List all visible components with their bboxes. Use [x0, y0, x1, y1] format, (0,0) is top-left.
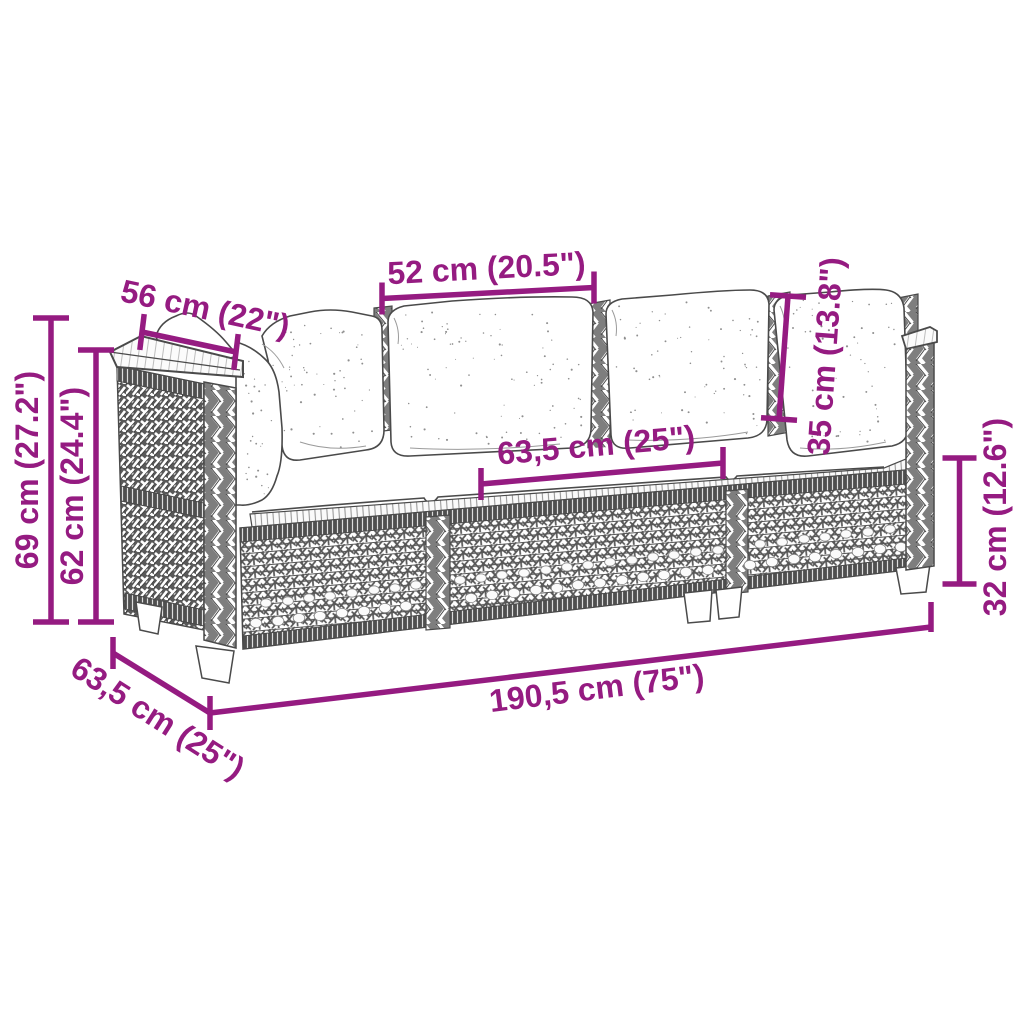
svg-text:69 cm (27.2"): 69 cm (27.2")	[9, 371, 45, 569]
svg-text:62 cm (24.4"): 62 cm (24.4")	[54, 387, 90, 585]
svg-text:32 cm (12.6"): 32 cm (12.6")	[977, 418, 1013, 616]
